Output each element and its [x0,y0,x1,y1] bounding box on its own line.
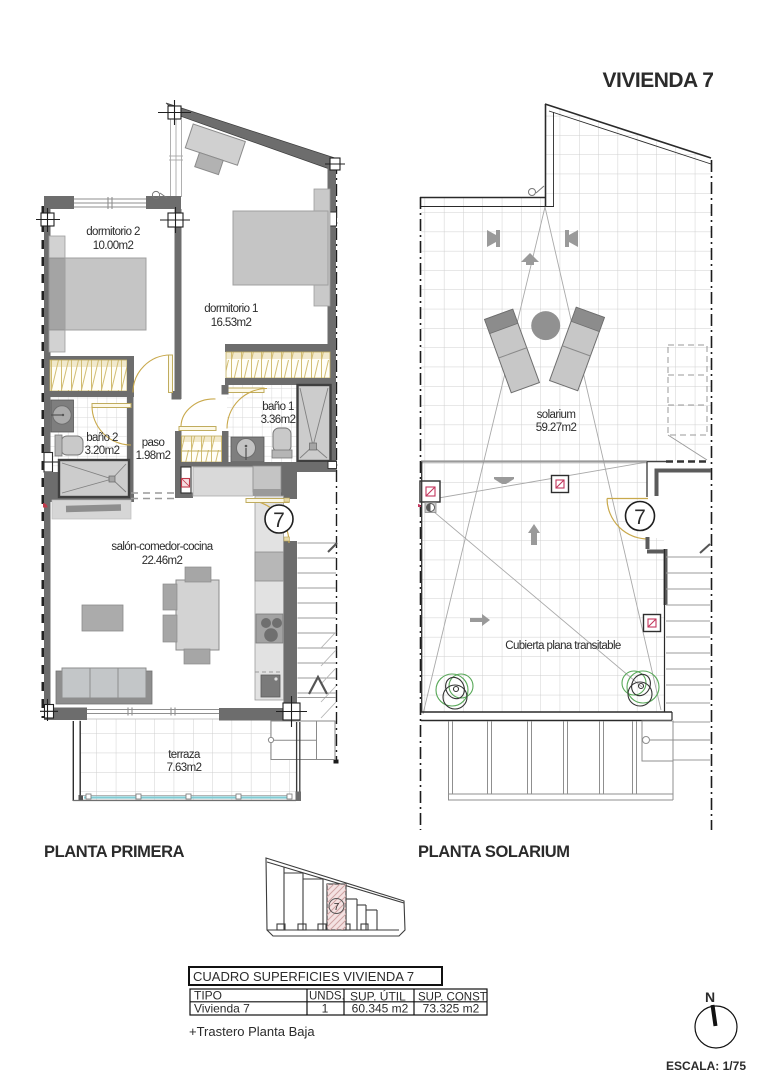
svg-text:PLANTA PRIMERA: PLANTA PRIMERA [44,843,185,861]
svg-text:Vivienda 7: Vivienda 7 [194,1002,250,1016]
svg-text:Cubierta plana transitable: Cubierta plana transitable [505,640,621,652]
svg-text:7.63m2: 7.63m2 [167,762,202,774]
svg-text:7: 7 [273,509,285,532]
svg-text:73.325 m2: 73.325 m2 [423,1002,480,1016]
svg-text:salón-comedor-cocina: salón-comedor-cocina [111,541,213,553]
svg-text:solarium: solarium [537,409,576,421]
svg-text:TIPO: TIPO [194,989,222,1003]
svg-text:CUADRO SUPERFICIES VIVIENDA 7: CUADRO SUPERFICIES VIVIENDA 7 [193,969,414,984]
svg-text:VIVIENDA 7: VIVIENDA 7 [603,69,714,92]
svg-text:dormitorio 1: dormitorio 1 [204,303,258,315]
svg-text:3.36m2: 3.36m2 [261,414,296,426]
svg-text:PLANTA SOLARIUM: PLANTA SOLARIUM [418,843,570,861]
svg-text:N: N [705,989,715,1005]
svg-text:7: 7 [634,506,646,529]
svg-text:22.46m2: 22.46m2 [142,555,183,567]
svg-text:terraza: terraza [168,749,201,761]
svg-text:1.98m2: 1.98m2 [136,450,171,462]
svg-text:baño 2: baño 2 [86,432,118,444]
svg-text:+Trastero Planta Baja: +Trastero Planta Baja [189,1024,315,1039]
svg-text:3.20m2: 3.20m2 [85,445,120,457]
svg-text:dormitorio 2: dormitorio 2 [86,226,140,238]
svg-text:1: 1 [322,1002,329,1016]
svg-text:60.345 m2: 60.345 m2 [352,1002,409,1016]
svg-text:ESCALA: 1/75: ESCALA: 1/75 [666,1059,746,1073]
svg-text:7: 7 [334,902,340,913]
svg-text:baño 1: baño 1 [262,401,294,413]
svg-text:16.53m2: 16.53m2 [211,317,252,329]
svg-text:59.27m2: 59.27m2 [536,422,577,434]
svg-text:10.00m2: 10.00m2 [93,240,134,252]
svg-text:paso: paso [142,437,165,449]
